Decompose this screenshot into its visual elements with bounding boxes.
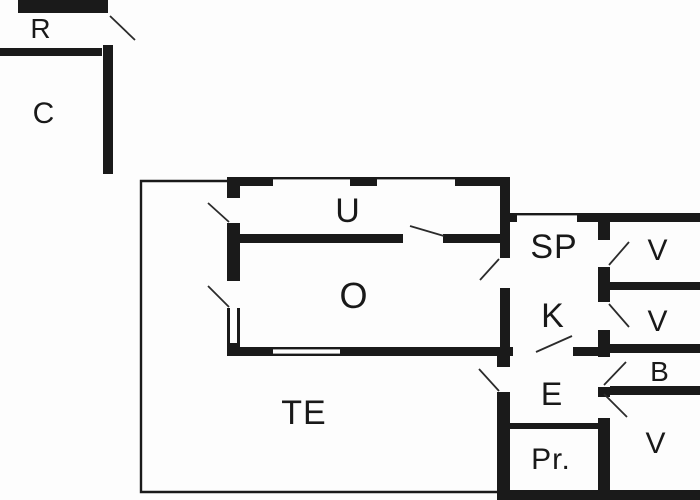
- window-sp-top: [517, 213, 577, 215]
- room-label-k: K: [541, 299, 565, 333]
- outbuilding-walls: [0, 0, 113, 174]
- floor-plan-canvas: R C U O TE SP K E Pr. V V B V: [0, 0, 700, 500]
- uo-right-wall: [500, 177, 510, 356]
- wall-outbuilding-right: [103, 45, 113, 174]
- mid-east-wall: [598, 222, 610, 500]
- door-swing-o-sp: [480, 259, 499, 280]
- door-swing-e-b: [604, 362, 626, 385]
- room-label-v3: V: [645, 429, 666, 459]
- k-bottom-wall: [497, 347, 610, 356]
- wall-outbuilding-top: [18, 0, 108, 13]
- window-u-top-2: [377, 177, 455, 179]
- floor-plan-drawing: [0, 0, 700, 500]
- room-label-e: E: [541, 378, 563, 410]
- e-pr-west-wall: [497, 356, 510, 500]
- door-swing-u-o: [410, 226, 444, 236]
- room-label-c: C: [33, 99, 56, 129]
- bottom-wall: [497, 490, 700, 500]
- wall-b-v3: [610, 386, 700, 395]
- door-swing-r: [110, 16, 135, 40]
- window-u-top-1: [273, 177, 350, 179]
- door-swing-sp-v1: [609, 242, 629, 265]
- room-label-r: R: [30, 15, 51, 43]
- door-swing-o-west: [208, 286, 229, 307]
- u-o-divider-wall: [236, 234, 510, 243]
- sp-v-top-wall: [505, 213, 700, 222]
- window-o-left-outer: [227, 308, 230, 343]
- door-swing-e-v3: [604, 394, 627, 417]
- door-swing-u-west: [208, 203, 229, 222]
- window-te-top-outer: [273, 347, 340, 349]
- uo-bottom-wall: [227, 347, 510, 356]
- room-label-sp: SP: [530, 230, 577, 264]
- terrace-outline: [141, 181, 498, 492]
- window-te-top-inner: [273, 354, 340, 356]
- door-swing-k-v2: [609, 304, 629, 327]
- room-label-v1: V: [647, 236, 668, 266]
- uo-left-wall: [227, 177, 240, 356]
- room-label-u: U: [335, 194, 361, 228]
- door-swing-k-e: [536, 336, 572, 352]
- pr-top-wall: [510, 423, 598, 429]
- uo-top-wall: [227, 177, 510, 186]
- wall-v2-b: [608, 344, 700, 353]
- wall-v1-v2: [610, 282, 700, 290]
- window-o-left-inner: [237, 308, 240, 343]
- room-label-pr: Pr.: [531, 445, 571, 475]
- room-label-v2: V: [647, 307, 668, 337]
- wall-r-c-divider: [0, 48, 102, 56]
- room-label-o: O: [339, 278, 368, 314]
- room-label-te: TE: [281, 396, 326, 430]
- door-swing-te-e: [479, 369, 499, 391]
- room-label-b: B: [650, 358, 670, 386]
